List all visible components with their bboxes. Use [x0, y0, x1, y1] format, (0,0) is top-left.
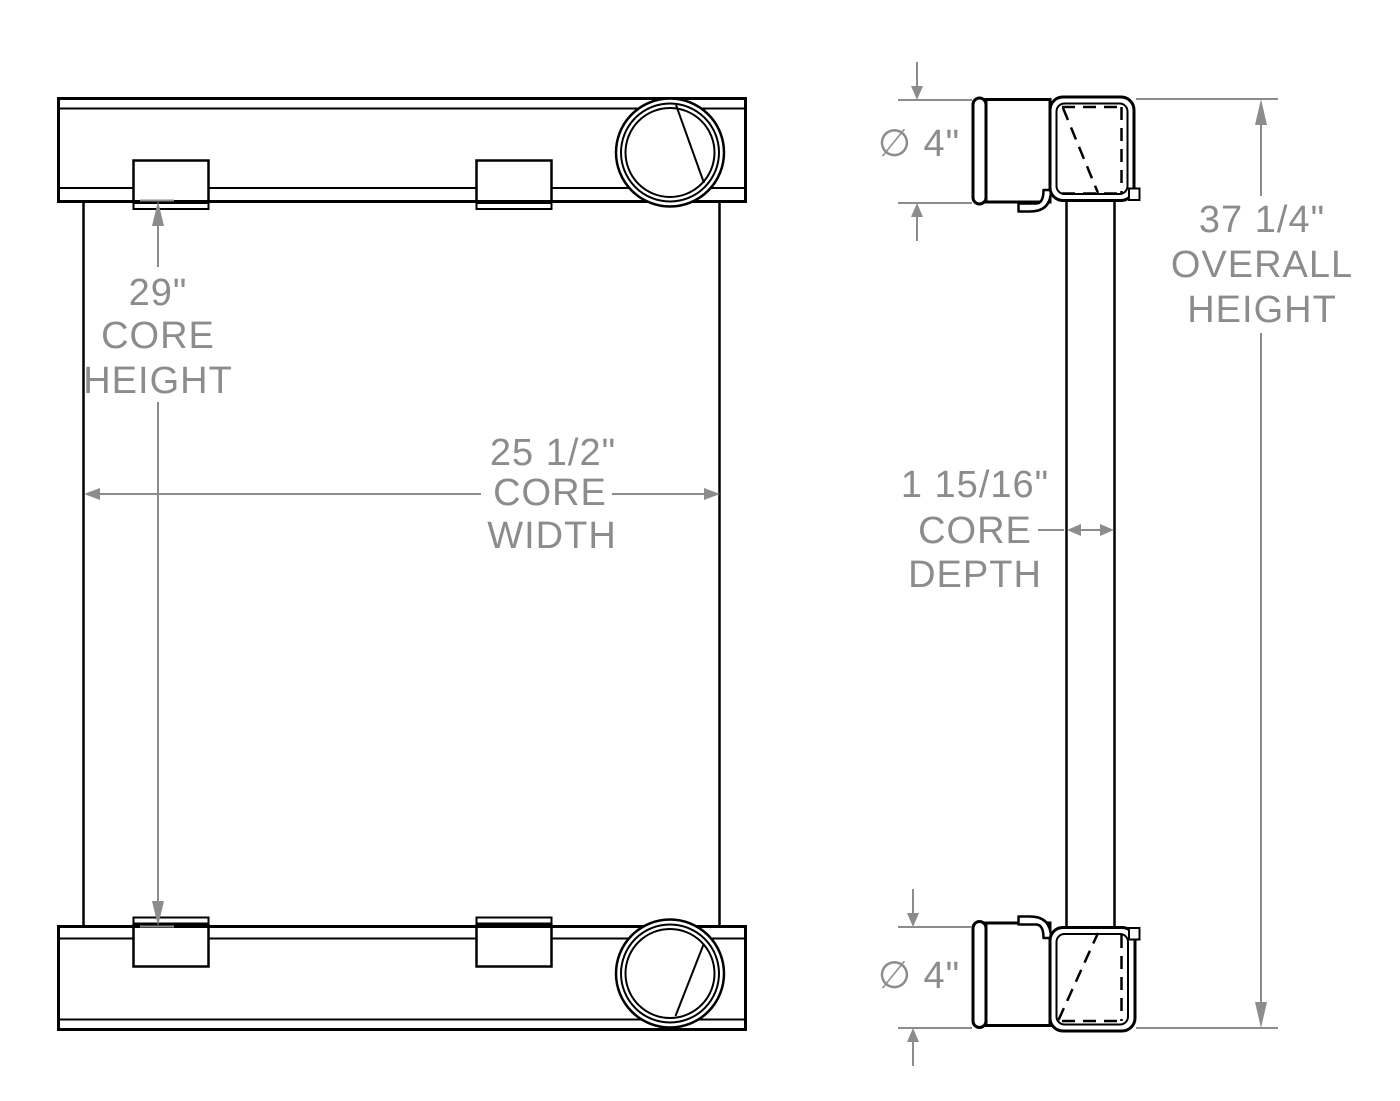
dim-core-height: 29" CORE HEIGHT [83, 201, 233, 927]
dim-core-width: 25 1/2" CORE WIDTH [84, 432, 720, 557]
dim-overall-height-value: 37 1/4" [1199, 199, 1325, 241]
dim-port-top-value: ∅ 4" [878, 123, 960, 165]
arrowhead-up [911, 203, 923, 217]
dim-port-bottom: ∅ 4" [878, 889, 972, 1066]
dim-core-height-value: 29" [129, 272, 188, 314]
front-view [59, 99, 746, 1030]
bracket-tab [134, 918, 209, 924]
top-pipe-bead [973, 98, 986, 204]
bottom-tank-step [1129, 928, 1140, 940]
bottom-port-assembly [973, 917, 1140, 1032]
dim-core-height-label2: HEIGHT [83, 360, 233, 402]
top-tank [59, 99, 746, 210]
arrowhead-down [911, 86, 923, 100]
top-pipe-body [986, 100, 1050, 203]
dim-core-width-label2: WIDTH [487, 515, 617, 557]
technical-drawing: 29" CORE HEIGHT 25 1/2" CORE WIDTH ∅ 4" … [0, 0, 1400, 1101]
dim-core-width-value: 25 1/2" [490, 432, 616, 474]
mount-bracket [134, 926, 209, 967]
arrowhead-up [1255, 99, 1267, 125]
dim-core-depth-value: 1 15/16" [901, 464, 1049, 506]
mount-bracket [134, 161, 209, 202]
drain-cap-outer-ring [616, 920, 724, 1028]
mount-bracket [477, 926, 552, 967]
dim-overall-height-label1: OVERALL [1171, 244, 1353, 286]
bottom-pipe-body [986, 923, 1050, 1026]
top-port-assembly [973, 97, 1140, 212]
dim-core-depth: 1 15/16" CORE DEPTH [901, 464, 1114, 596]
dim-overall-height-label2: HEIGHT [1187, 289, 1337, 331]
dim-core-height-label1: CORE [101, 315, 215, 357]
dim-core-depth-label2: DEPTH [908, 554, 1042, 596]
bracket-tab [477, 203, 552, 209]
bracket-tab [134, 203, 209, 209]
dim-core-depth-label1: CORE [918, 510, 1032, 552]
arrowhead-down [907, 913, 919, 927]
arrowhead-up [907, 1028, 919, 1042]
filler-cap-outer-ring [616, 99, 724, 207]
arrowhead-left [84, 488, 100, 500]
arrowhead-down [1255, 1002, 1267, 1028]
bottom-tank [59, 918, 746, 1030]
filler-cap [616, 99, 724, 207]
arrowhead-right [1100, 524, 1114, 536]
dim-overall-height: 37 1/4" OVERALL HEIGHT [1136, 99, 1353, 1028]
top-tank-step [1129, 189, 1140, 201]
mount-bracket [477, 161, 552, 202]
drain-cap [616, 920, 724, 1028]
dim-port-top: ∅ 4" [878, 62, 972, 241]
bottom-pipe-bead [973, 922, 986, 1028]
dim-core-width-label1: CORE [493, 472, 607, 514]
bracket-tab [477, 918, 552, 924]
dim-port-bottom-value: ∅ 4" [878, 955, 960, 997]
arrowhead-right [704, 488, 720, 500]
